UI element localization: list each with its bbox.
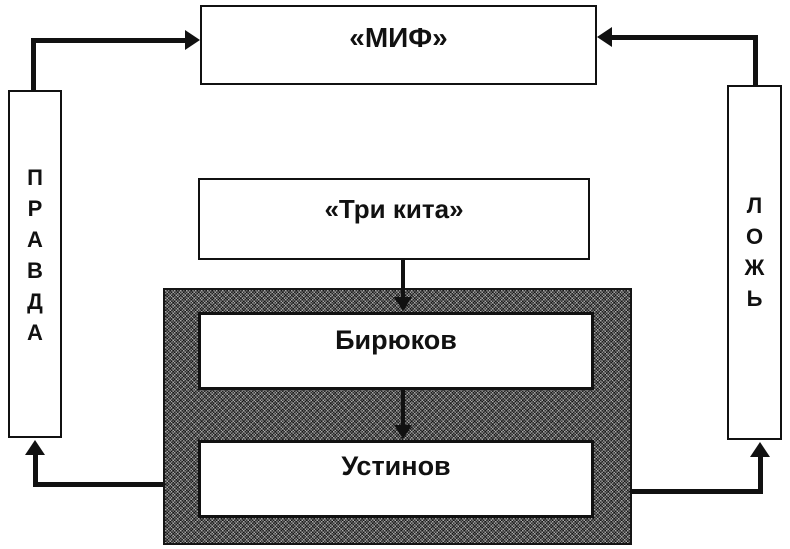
myth-box: «МИФ» — [200, 5, 597, 85]
truth-letter: Р — [28, 193, 43, 224]
truth-to-myth-connector-horizontal — [31, 38, 186, 43]
panel-to-truth-connector-horizontal — [33, 482, 163, 487]
lie-letter: Ь — [747, 283, 763, 314]
truth-letter: А — [27, 317, 43, 348]
truth-letter: А — [27, 224, 43, 255]
myth-label: «МИФ» — [349, 22, 448, 54]
ustinov-box: Устинов — [198, 440, 594, 518]
truth-letter: П — [27, 162, 43, 193]
arrowhead-left-icon — [597, 27, 612, 47]
truth-box: П Р А В Д А — [8, 90, 62, 438]
lie-letter: Ж — [745, 252, 765, 283]
arrowhead-down-icon — [394, 425, 412, 439]
lie-letter: Л — [747, 190, 762, 221]
panel-to-truth-connector-vertical — [33, 452, 38, 487]
arrowhead-down-icon — [394, 297, 412, 311]
lie-box: Л О Ж Ь — [727, 85, 782, 440]
biryukov-box: Бирюков — [198, 312, 594, 390]
lie-to-myth-connector-vertical — [753, 35, 758, 87]
lie-to-myth-connector-horizontal — [612, 35, 758, 40]
truth-to-myth-connector-vertical — [31, 38, 36, 92]
panel-to-lie-connector-horizontal — [630, 489, 761, 494]
truth-letter: Д — [27, 286, 43, 317]
arrowhead-up-icon — [750, 442, 770, 457]
truth-letter: В — [27, 255, 43, 286]
arrowhead-right-icon — [185, 30, 200, 50]
panel-to-lie-connector-vertical — [758, 456, 763, 494]
three-whales-label: «Три кита» — [324, 194, 463, 225]
whales-to-biryukov-connector — [401, 260, 405, 298]
ustinov-label: Устинов — [341, 451, 450, 482]
three-whales-box: «Три кита» — [198, 178, 590, 260]
biryukov-to-ustinov-connector — [401, 390, 405, 426]
arrowhead-up-icon — [25, 440, 45, 455]
lie-letter: О — [746, 221, 763, 252]
biryukov-label: Бирюков — [335, 325, 457, 356]
diagram-canvas: «МИФ» «Три кита» Бирюков Устинов П Р А В… — [0, 0, 790, 549]
